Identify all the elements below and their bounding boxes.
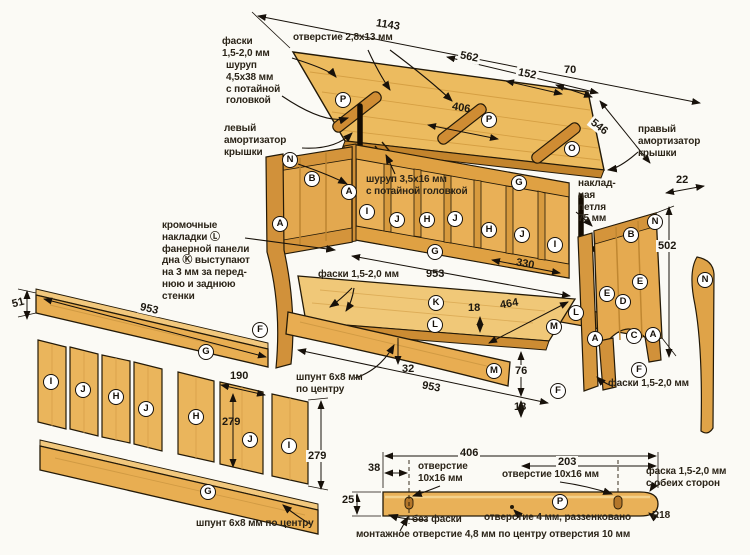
- label-edge-trims: кромочные накладки Ⓛ фанерной панели дна…: [162, 220, 250, 303]
- label-hole-left: отверстие 10х16 мм: [418, 461, 468, 485]
- part-marker-a: A: [645, 327, 661, 343]
- part-marker-g: G: [427, 244, 443, 260]
- part-marker-n: N: [697, 272, 713, 288]
- label-hole-4: отверстие 4 мм, раззенковано: [484, 512, 631, 524]
- label-screw-3-5: шуруп 3,5х16 мм с потайной головкой: [366, 174, 468, 198]
- part-marker-j: J: [75, 382, 91, 398]
- part-marker-p: P: [335, 92, 351, 108]
- part-marker-f: F: [252, 322, 268, 338]
- part-marker-l: L: [568, 305, 584, 321]
- part-marker-j: J: [138, 401, 154, 417]
- part-marker-g: G: [511, 175, 527, 191]
- label-hole-right: отверстие 10х16 мм: [502, 469, 599, 481]
- part-marker-a: A: [587, 331, 603, 347]
- part-marker-p: P: [552, 494, 568, 510]
- dim-38: 38: [366, 462, 382, 474]
- dim-953-back: 953: [426, 268, 444, 280]
- dim-406-detail: 406: [458, 447, 480, 459]
- part-marker-g: G: [198, 344, 214, 360]
- label-overlay-hinge: наклад- ная петля 75 мм: [578, 178, 616, 225]
- part-marker-e: E: [599, 286, 615, 302]
- part-marker-i: I: [43, 374, 59, 390]
- label-chamfer-both: фаска 1,5-2,0 мм с обеих сторон: [646, 466, 726, 490]
- part-marker-h: H: [419, 212, 435, 228]
- part-marker-c: C: [626, 328, 642, 344]
- label-left-damper: левый амортизатор крышки: [224, 123, 286, 158]
- part-marker-d: D: [615, 294, 631, 310]
- part-marker-p: P: [481, 112, 497, 128]
- label-right-damper: правый амортизатор крышки: [638, 124, 700, 159]
- dim-18-front: 18: [514, 401, 526, 413]
- part-marker-h: H: [108, 389, 124, 405]
- dim-190: 190: [228, 370, 250, 382]
- part-marker-i: I: [547, 237, 563, 253]
- label-radius-r18: R18: [652, 510, 670, 522]
- part-marker-m: M: [546, 319, 562, 335]
- part-marker-b: B: [623, 227, 639, 243]
- label-chamfer-top: фаски 1,5-2,0 мм: [222, 36, 270, 60]
- part-marker-k: K: [428, 295, 444, 311]
- part-marker-e: E: [632, 274, 648, 290]
- part-marker-f: F: [550, 383, 566, 399]
- part-marker-a: A: [272, 216, 288, 232]
- part-marker-b: B: [304, 171, 320, 187]
- dim-25: 25: [340, 494, 356, 506]
- part-marker-j: J: [447, 211, 463, 227]
- label-chamfer-right: фаски 1,5-2,0 мм: [608, 378, 689, 390]
- label-no-chamfer: без фаски: [412, 514, 462, 526]
- dim-279-b: 279: [306, 450, 328, 462]
- part-marker-g: G: [200, 484, 216, 500]
- part-marker-o: O: [564, 141, 580, 157]
- dim-502: 502: [656, 240, 678, 252]
- part-marker-h: H: [188, 409, 204, 425]
- part-marker-l: L: [427, 317, 443, 333]
- part-marker-n: N: [647, 214, 663, 230]
- dim-279-a: 279: [222, 416, 240, 428]
- label-mounting-hole: монтажное отверстие 4,8 мм по центру отв…: [356, 529, 630, 541]
- dim-22: 22: [676, 174, 688, 186]
- dim-76: 76: [513, 365, 529, 377]
- dim-203: 203: [556, 456, 578, 468]
- part-marker-j: J: [514, 227, 530, 243]
- part-marker-j: J: [389, 212, 405, 228]
- dim-32: 32: [402, 363, 414, 375]
- dim-18-bottom: 18: [468, 302, 480, 314]
- part-marker-f: F: [631, 362, 647, 378]
- part-marker-n: N: [282, 152, 298, 168]
- label-tongue-mid: шпунт 6х8 мм по центру: [296, 372, 363, 396]
- part-marker-h: H: [481, 222, 497, 238]
- label-tongue-bottom: шпунт 6х8 мм по центру: [196, 518, 314, 530]
- part-marker-j: J: [242, 432, 258, 448]
- label-chamfer-center: фаски 1,5-2,0 мм: [318, 269, 399, 281]
- label-hole-2-8: отверстие 2,8х13 мм: [293, 32, 393, 44]
- woodworking-diagram: фаски 1,5-2,0 мм отверстие 2,8х13 мм шур…: [0, 0, 750, 555]
- part-marker-a: A: [341, 184, 357, 200]
- dim-70: 70: [564, 64, 576, 76]
- part-marker-i: I: [281, 438, 297, 454]
- part-marker-m: M: [486, 363, 502, 379]
- label-screw-4-5: шуруп 4,5х38 мм с потайной головкой: [226, 60, 280, 107]
- part-marker-i: I: [359, 204, 375, 220]
